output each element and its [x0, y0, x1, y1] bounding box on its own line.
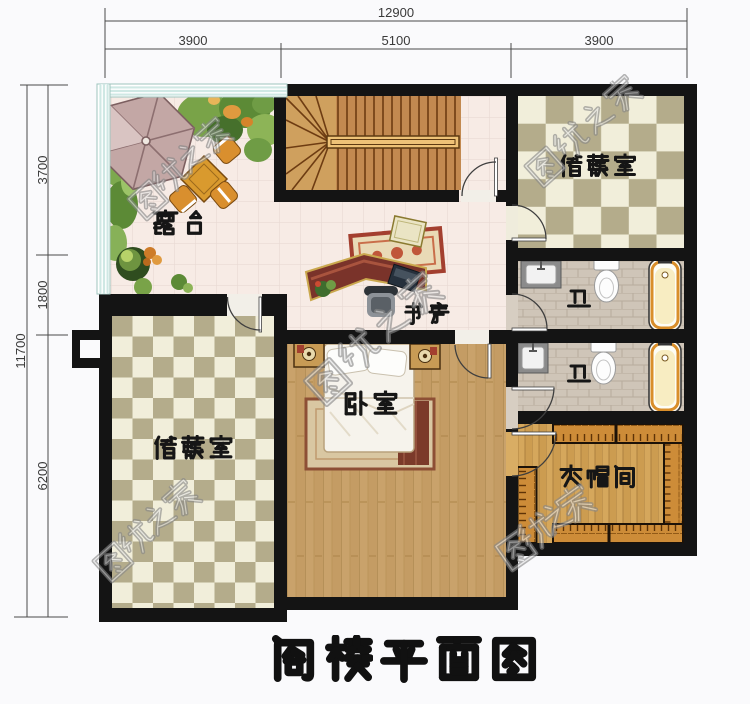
svg-text:3900: 3900 — [179, 33, 208, 48]
svg-text:3900: 3900 — [585, 33, 614, 48]
svg-text:11700: 11700 — [13, 333, 28, 368]
svg-text:1800: 1800 — [35, 281, 50, 310]
svg-text:12900: 12900 — [378, 5, 414, 20]
svg-text:3700: 3700 — [35, 156, 50, 185]
svg-text:5100: 5100 — [382, 33, 411, 48]
svg-text:6200: 6200 — [35, 462, 50, 491]
